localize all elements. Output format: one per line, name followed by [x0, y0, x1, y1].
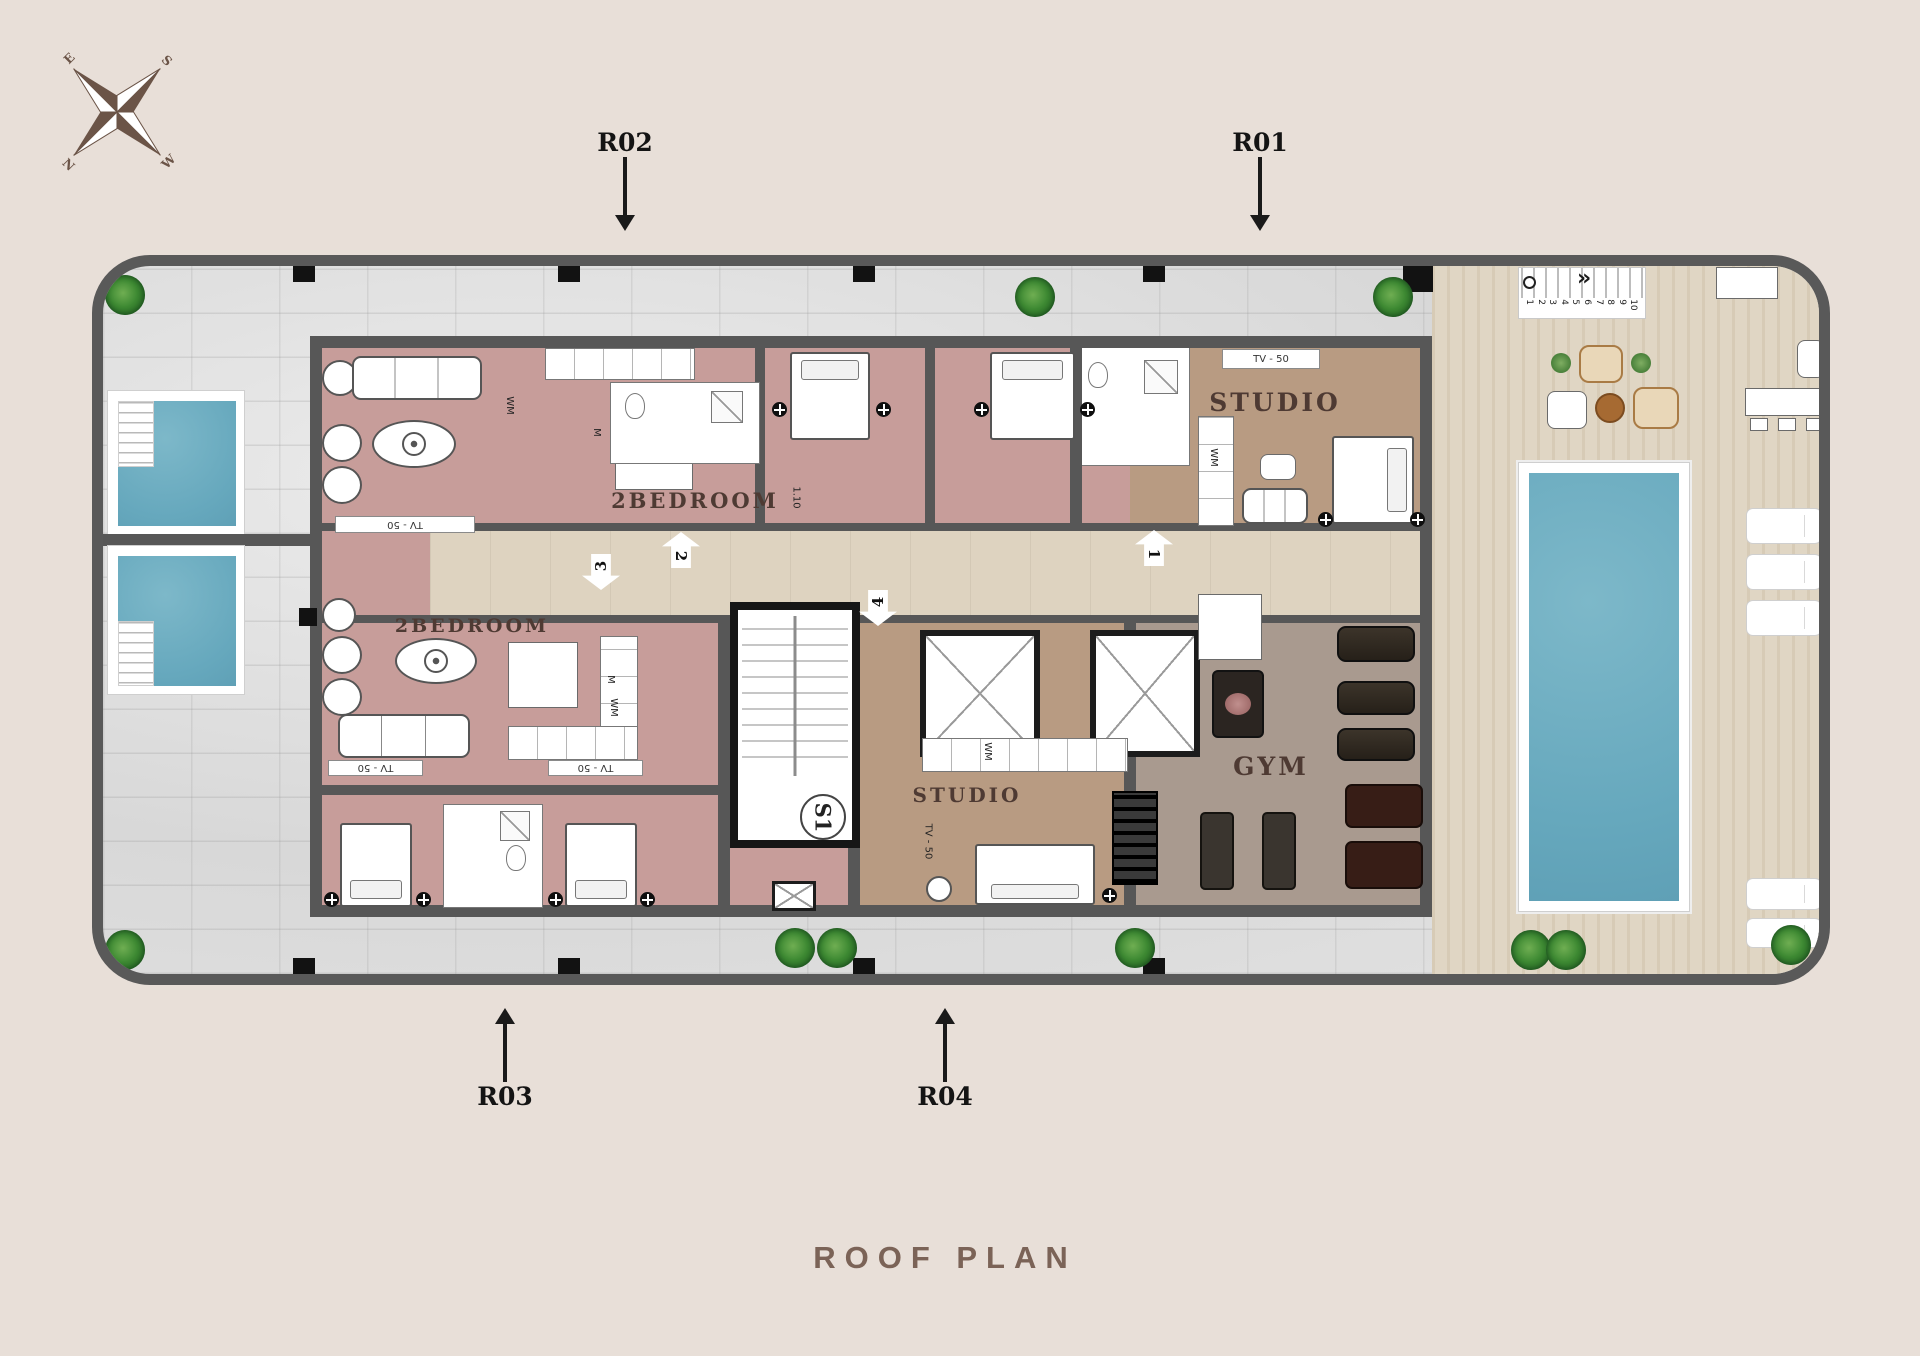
wall-light-icon — [640, 892, 655, 907]
wall — [310, 336, 322, 917]
callout-r03: R03 — [470, 1008, 540, 1111]
stair-step-number: 7 — [1593, 299, 1603, 311]
room-label-2bedroom-left: 2BEDROOM — [357, 615, 587, 637]
callout-r03-arrow-icon — [495, 1008, 515, 1024]
column-icon — [853, 958, 875, 974]
washing-machine-label: WM — [504, 396, 515, 415]
callout-r04: R04 — [910, 1008, 980, 1111]
compass-star-icon: E S W N — [55, 50, 179, 174]
sun-lounger-icon — [1746, 878, 1822, 910]
rattan-chair-icon — [1579, 345, 1623, 383]
bed-icon — [975, 844, 1095, 905]
building-outline: » 1 2 3 4 5 6 7 8 9 10 — [92, 255, 1830, 985]
compass-letter-n: N — [59, 155, 78, 174]
bar-stool-icon — [1806, 418, 1824, 431]
callout-r01-label: R01 — [1232, 128, 1288, 157]
coffee-table-icon — [395, 638, 477, 684]
wall-light-icon — [548, 892, 563, 907]
service-shaft — [772, 881, 816, 911]
tree-icon — [1015, 277, 1055, 317]
toilet-icon — [1088, 362, 1108, 388]
main-pool — [1518, 462, 1690, 912]
room-label-studio-bottom: STUDIO — [887, 783, 1047, 807]
main-pool-water — [1529, 473, 1679, 901]
gym-bench-icon — [1200, 812, 1234, 890]
apartment-block: S1 TV - 50 W — [310, 336, 1432, 917]
treadmill-icon — [1337, 626, 1415, 662]
rattan-lounger-icon — [1633, 387, 1679, 429]
treadmill-icon — [1337, 681, 1415, 715]
machine-label: M — [605, 675, 616, 684]
column-icon — [293, 958, 315, 974]
unit-door-3-number: 3 — [592, 561, 610, 571]
kitchen-counter — [508, 726, 638, 760]
sofa-icon — [338, 714, 470, 758]
washing-machine-label: WM — [1208, 448, 1219, 467]
bathroom — [443, 804, 543, 908]
deck-stairs: » 1 2 3 4 5 6 7 8 9 10 — [1518, 267, 1646, 319]
tv-console-label: TV - 50 — [1222, 349, 1320, 369]
dining-table-icon — [508, 642, 578, 708]
bed-icon — [565, 823, 637, 907]
callout-r04-label: R04 — [917, 1082, 973, 1111]
toilet-icon — [506, 845, 526, 871]
stair-step-number: 9 — [1617, 299, 1627, 311]
column-icon — [299, 608, 317, 626]
drawing-title: ROOF PLAN — [0, 1240, 1890, 1276]
roof-plan-canvas: E S W N R02 R01 R03 R04 » — [0, 0, 1920, 1356]
plant-icon — [1551, 353, 1571, 373]
wall-light-icon — [1318, 512, 1333, 527]
pool-steps-icon — [118, 401, 154, 467]
side-table-icon — [322, 598, 356, 632]
wall-light-icon — [974, 402, 989, 417]
bed-icon — [990, 352, 1075, 440]
gym-bench-icon — [1262, 812, 1296, 890]
callout-r02: R02 — [590, 128, 660, 231]
washing-machine-label: WM — [608, 698, 619, 717]
room-label-gym: GYM — [1211, 752, 1331, 781]
column-icon — [558, 958, 580, 974]
unit-door-1-number: 1 — [1145, 549, 1163, 559]
wall — [718, 623, 730, 905]
bed-icon — [340, 823, 412, 907]
callout-r03-arrow-line — [503, 1024, 507, 1082]
sun-lounger-icon — [1746, 508, 1822, 544]
stair-step-number: 4 — [1559, 299, 1569, 311]
outdoor-sink — [1797, 340, 1825, 378]
corridor-wall — [322, 523, 1420, 531]
tv-console-label: TV - 50 — [335, 516, 475, 533]
pool-steps-icon — [118, 621, 154, 686]
bar-stool-icon — [1778, 418, 1796, 431]
bed-icon — [1332, 436, 1414, 524]
armchair-icon — [322, 424, 362, 462]
wall — [310, 336, 1432, 348]
kitchen-counter — [1198, 416, 1234, 526]
column-icon — [558, 266, 580, 282]
coffee-table-icon — [372, 420, 456, 468]
deck-stairs-start-icon — [1523, 276, 1536, 289]
tree-icon — [1115, 928, 1155, 968]
shower-icon — [500, 811, 530, 841]
tv-console-label: TV - 50 — [922, 824, 933, 860]
unit-door-4-number: 4 — [869, 597, 887, 607]
treadmill-icon — [1337, 728, 1415, 761]
tree-icon — [817, 928, 857, 968]
tree-icon — [105, 930, 145, 970]
gym-vestibule — [1198, 594, 1262, 660]
stair-step-number: 3 — [1547, 299, 1557, 311]
callout-r04-arrow-line — [943, 1024, 947, 1082]
stair-step-number: 5 — [1570, 299, 1580, 311]
kitchen-counter — [545, 348, 695, 380]
stair-step-number: 2 — [1535, 299, 1545, 311]
outdoor-counter — [1716, 267, 1778, 299]
compass-letter-s: S — [159, 52, 176, 69]
tree-icon — [1511, 930, 1551, 970]
compass-letter-w: W — [157, 150, 179, 172]
column-icon — [1143, 266, 1165, 282]
armchair-icon — [322, 678, 362, 716]
callout-r01: R01 — [1225, 128, 1295, 231]
room-label-2bedroom-top: 2BEDROOM — [580, 488, 810, 513]
wall — [925, 348, 935, 523]
tree-icon — [1771, 925, 1811, 965]
deck-stairs-direction-icon: » — [1577, 266, 1591, 291]
private-pool-lower — [107, 545, 245, 695]
wall-light-icon — [1080, 402, 1095, 417]
stair-core-label: S1 — [811, 802, 836, 832]
wall-light-icon — [1102, 888, 1117, 903]
tree-icon — [1546, 930, 1586, 970]
bed-icon — [790, 352, 870, 440]
wall — [322, 785, 718, 795]
callout-r04-arrow-icon — [935, 1008, 955, 1024]
tree-icon — [1373, 277, 1413, 317]
private-pool-upper — [107, 390, 245, 535]
plant-icon — [1631, 353, 1651, 373]
gym-machine-icon — [1345, 784, 1423, 828]
wall-light-icon — [324, 892, 339, 907]
corridor-floor — [430, 531, 1420, 615]
callout-r03-label: R03 — [477, 1082, 533, 1111]
dumbbell-rack-icon — [1112, 791, 1158, 885]
deck-stairs-numbers: 1 2 3 4 5 6 7 8 9 10 — [1523, 300, 1639, 310]
tree-icon — [775, 928, 815, 968]
stair-step-number: 6 — [1582, 299, 1592, 311]
callout-r01-arrow-line — [1258, 157, 1262, 215]
tv-console-label: TV - 50 — [548, 760, 643, 776]
sofa-icon — [1242, 488, 1308, 524]
stair-step-number: 10 — [1628, 299, 1638, 311]
tv-console-label: TV - 50 — [328, 760, 423, 776]
tree-icon — [105, 275, 145, 315]
sun-lounger-icon — [1746, 600, 1822, 636]
room-label-studio-top: STUDIO — [1185, 388, 1365, 417]
callout-r02-arrow-line — [623, 157, 627, 215]
unit-door-2-number: 2 — [672, 551, 690, 561]
shower-icon — [711, 391, 743, 423]
gym-machine-icon — [1345, 841, 1423, 889]
washing-machine-label: WM — [982, 742, 993, 761]
column-icon — [293, 266, 315, 282]
coffee-table-icon — [1260, 454, 1296, 480]
armchair-icon — [322, 636, 362, 674]
stair-core-label-badge: S1 — [800, 794, 846, 840]
bathroom — [610, 382, 760, 464]
machine-label: M — [591, 428, 602, 437]
deck-seating-group — [1543, 341, 1683, 441]
armchair-icon — [322, 466, 362, 504]
gym-machine-icon — [1212, 670, 1264, 738]
side-table-icon — [926, 876, 952, 902]
column-icon — [853, 266, 875, 282]
lounge-chair-icon — [1547, 391, 1587, 429]
callout-r02-label: R02 — [597, 128, 653, 157]
wall-light-icon — [772, 402, 787, 417]
sun-lounger-icon — [1746, 554, 1822, 590]
toilet-icon — [625, 393, 645, 419]
stair-rail — [794, 616, 797, 776]
kitchen-counter — [922, 738, 1128, 772]
shower-icon — [1144, 360, 1178, 394]
stair-step-number: 1 — [1524, 299, 1534, 311]
wall-light-icon — [416, 892, 431, 907]
wall-light-icon — [876, 402, 891, 417]
wall-light-icon — [1410, 512, 1425, 527]
stair-step-number: 8 — [1605, 299, 1615, 311]
wall — [1420, 336, 1432, 917]
compass-rose: E S W N — [55, 50, 179, 174]
bar-counter — [1745, 388, 1827, 416]
bar-stool-icon — [1750, 418, 1768, 431]
compass-letter-e: E — [60, 50, 77, 67]
round-table-icon — [1595, 393, 1625, 423]
stair-core: S1 — [730, 602, 860, 848]
callout-r01-arrow-icon — [1250, 215, 1270, 231]
callout-r02-arrow-icon — [615, 215, 635, 231]
sofa-icon — [352, 356, 482, 400]
